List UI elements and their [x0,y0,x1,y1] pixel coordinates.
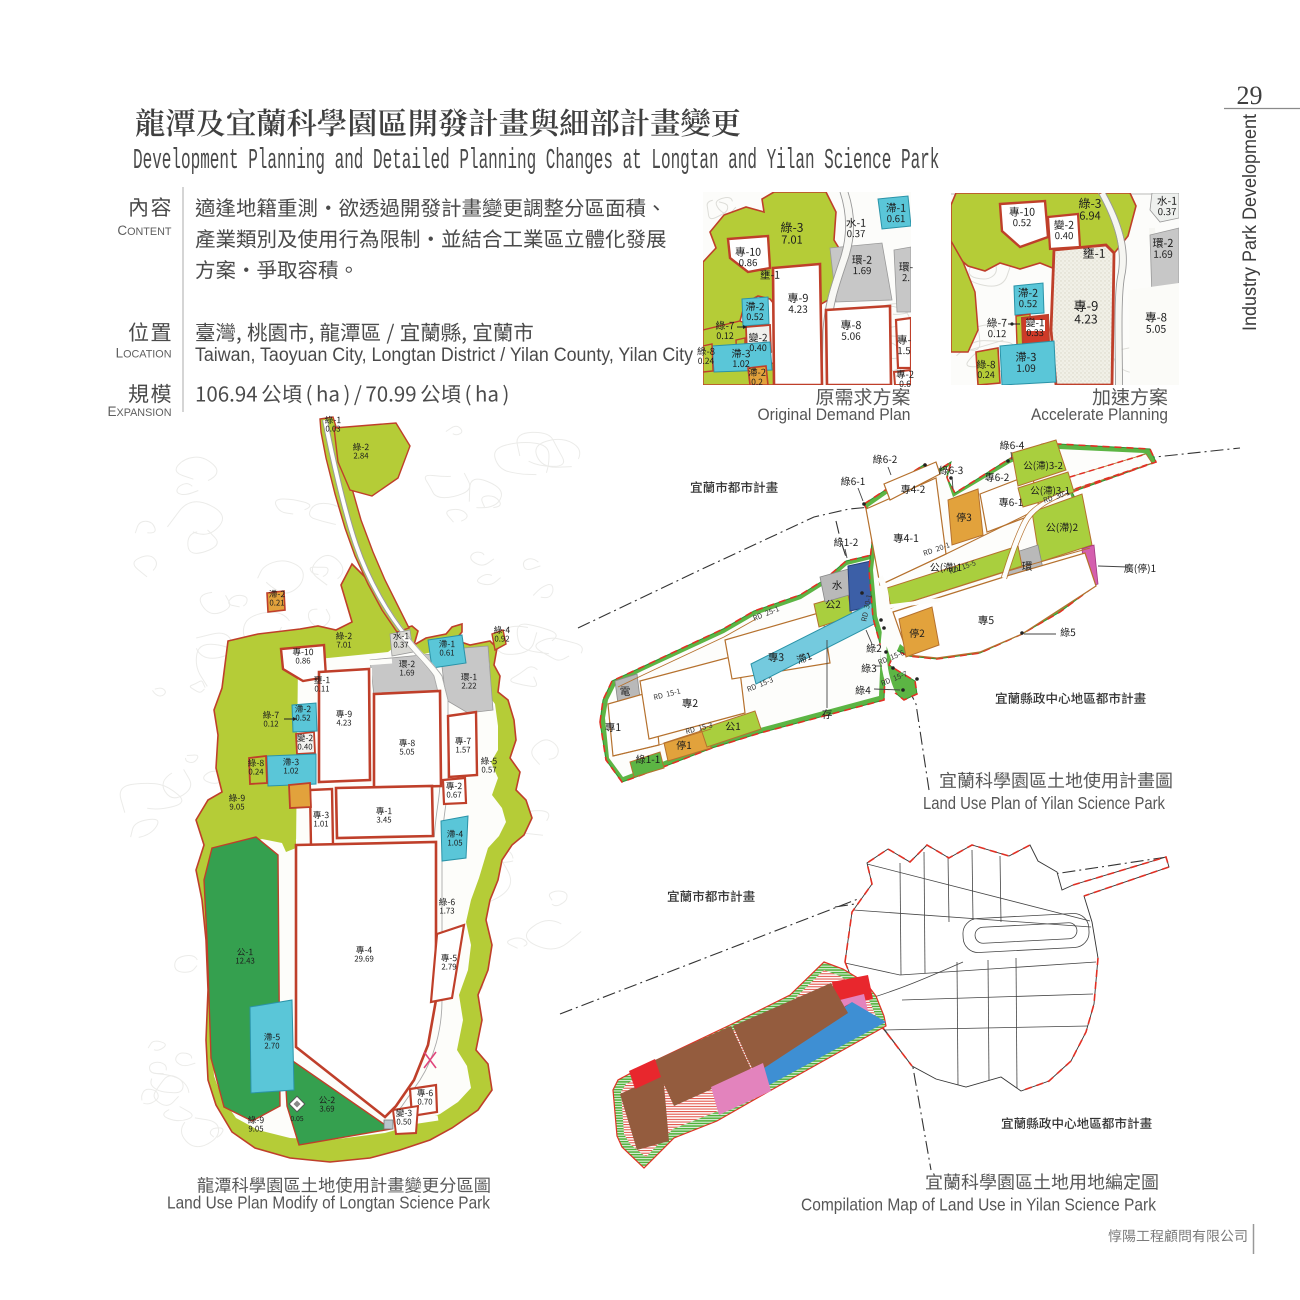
svg-text:Accelerate Planning: Accelerate Planning [1031,405,1168,424]
svg-text:CONTENT: CONTENT [117,223,172,238]
svg-text:Development Planning and Detai: Development Planning and Detailed Planni… [133,146,939,178]
svg-text:Taiwan, Taoyuan City, Longtan: Taiwan, Taoyuan City, Longtan District /… [195,345,693,366]
svg-text:Industry Park Development: Industry Park Development [1240,113,1261,331]
svg-text:Original Demand Plan: Original Demand Plan [758,405,911,424]
svg-text:EXPANSION: EXPANSION [107,404,171,419]
svg-text:Compilation Map of Land Use in: Compilation Map of Land Use in Yilan Sci… [801,1195,1156,1215]
svg-text:29: 29 [1237,81,1263,110]
svg-text:Land Use Plan Modify of Longta: Land Use Plan Modify of Longtan Science … [167,1193,490,1213]
svg-text:LOCATION: LOCATION [116,346,172,361]
svg-text:Land Use Plan of Yilan Science: Land Use Plan of Yilan Science Park [923,793,1165,813]
